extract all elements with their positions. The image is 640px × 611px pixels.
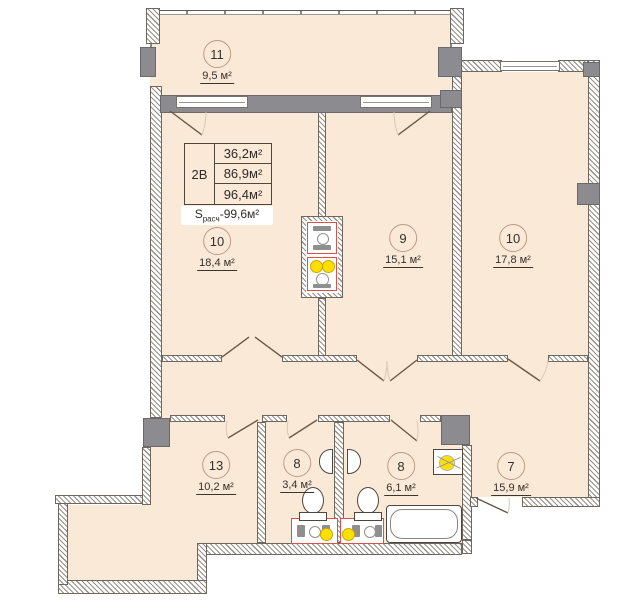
legend-total-prefix: S bbox=[195, 207, 203, 221]
room-number-badge: 11 bbox=[203, 40, 231, 68]
floor-plan: 2В 36,2м² 86,9м² 96,4м² Sрасч-99,6м² 11 … bbox=[0, 0, 640, 611]
toilet-icon bbox=[357, 487, 379, 514]
door-arc bbox=[508, 498, 509, 513]
wall-mid-seg2 bbox=[282, 355, 357, 362]
vent-grille bbox=[313, 226, 331, 231]
vent-grille bbox=[313, 284, 331, 288]
wall-low-seg1 bbox=[170, 415, 225, 422]
column-hall-right bbox=[441, 415, 470, 445]
toilet-tank-icon bbox=[299, 512, 327, 521]
room-label-9: 9 15,1 м² bbox=[383, 224, 423, 268]
wall-mid-seg3 bbox=[417, 355, 508, 362]
window-room-10-left bbox=[176, 96, 248, 108]
legend-area-row: 36,2м² bbox=[215, 144, 271, 164]
wall-left-lower bbox=[142, 447, 151, 505]
wall-outer-left bbox=[150, 86, 162, 418]
room-number-badge: 9 bbox=[389, 224, 417, 252]
column-balcony-right bbox=[438, 47, 462, 77]
column-top-right-corner bbox=[583, 62, 600, 77]
window-room-9 bbox=[360, 96, 432, 108]
legend-total-value: 99,6м² bbox=[224, 207, 260, 221]
wall-low-seg3 bbox=[318, 415, 390, 422]
room-area-label: 15,9 м² bbox=[491, 482, 531, 496]
room-number-badge: 10 bbox=[499, 224, 527, 252]
wall-step-vertical bbox=[197, 543, 207, 585]
wall-bottom-left bbox=[58, 580, 207, 594]
wall-room7-bottom bbox=[522, 497, 600, 507]
wall-mid-seg4 bbox=[548, 355, 588, 362]
balcony-glazing bbox=[150, 10, 452, 15]
column-right-wall bbox=[577, 183, 600, 205]
wall-room7-left bbox=[462, 445, 472, 540]
room-label-10-left: 10 18,4 м² bbox=[197, 227, 237, 271]
room-area-label: 9,5 м² bbox=[200, 70, 234, 84]
electrical-panel-icon bbox=[433, 449, 463, 475]
room-number-badge: 8 bbox=[387, 452, 415, 480]
room-label-10-right: 10 17,8 м² bbox=[493, 224, 533, 268]
wall-low-seg4 bbox=[420, 415, 441, 422]
legend-area-row: 96,4м² bbox=[215, 184, 271, 204]
room-label-13: 13 10,2 м² bbox=[196, 451, 236, 495]
duct-circle bbox=[317, 233, 329, 245]
riser-dot bbox=[342, 528, 355, 541]
wall-room7-left-foot bbox=[462, 540, 472, 554]
legend-total-sub: расч bbox=[203, 214, 220, 223]
column-balcony-left bbox=[140, 47, 156, 77]
wall-column-top-right bbox=[450, 8, 464, 44]
room-area-label: 15,1 м² bbox=[383, 254, 423, 268]
legend-type: 2В bbox=[185, 144, 215, 204]
floor-balcony bbox=[150, 12, 452, 95]
wall-corridor-left bbox=[58, 503, 68, 585]
room-number-badge: 8 bbox=[283, 449, 311, 477]
vent-shaft-lower bbox=[307, 257, 337, 291]
door-swing bbox=[476, 498, 508, 513]
room-area-label: 18,4 м² bbox=[197, 257, 237, 271]
column-room13-topleft bbox=[143, 418, 170, 447]
room-label-balcony: 11 9,5 м² bbox=[200, 40, 234, 84]
bathtub-inner bbox=[390, 509, 458, 539]
riser-dot bbox=[320, 528, 333, 541]
wall-outer-right bbox=[588, 60, 600, 505]
wall-bathrooms-bottom bbox=[205, 543, 462, 555]
vent-shaft-upper bbox=[307, 222, 337, 254]
room-area-label: 3,4 м² bbox=[280, 479, 314, 493]
wall-10l-9-upper bbox=[318, 108, 326, 218]
wall-column-top-left bbox=[146, 8, 160, 44]
floor-room-10-right bbox=[462, 72, 588, 358]
legend-total: Sрасч-99,6м² bbox=[181, 206, 273, 225]
wall-10l-9-lower bbox=[318, 298, 326, 356]
room-area-label: 17,8 м² bbox=[493, 254, 533, 268]
room-number-badge: 10 bbox=[203, 227, 231, 255]
floor-entry-corridor bbox=[68, 505, 205, 580]
wall-9-10r bbox=[452, 72, 462, 356]
wall-13-8a bbox=[257, 422, 266, 543]
wall-mid-seg1 bbox=[162, 355, 222, 362]
legend-area-row: 86,9м² bbox=[215, 164, 271, 184]
vent-grille bbox=[313, 245, 331, 250]
column-10r-topleft bbox=[440, 90, 462, 108]
room-number-badge: 7 bbox=[497, 452, 525, 480]
vent-grille bbox=[297, 525, 305, 537]
room-label-7: 7 15,9 м² bbox=[491, 452, 531, 496]
room-area-label: 6,1 м² bbox=[384, 482, 418, 496]
room-number-badge: 13 bbox=[202, 451, 230, 479]
riser-dot bbox=[322, 260, 335, 273]
legend-table: 2В 36,2м² 86,9м² 96,4м² bbox=[184, 143, 272, 205]
wall-room7-bottom-stub bbox=[470, 497, 478, 507]
wall-low-seg2 bbox=[262, 415, 287, 422]
room-area-label: 10,2 м² bbox=[196, 481, 236, 495]
toilet-tank-icon bbox=[354, 512, 382, 521]
room-label-8-large: 8 6,1 м² bbox=[384, 452, 418, 496]
vent-grille bbox=[375, 525, 382, 537]
window-room-10-right bbox=[500, 61, 560, 71]
wall-corridor-top bbox=[55, 495, 143, 504]
room-label-8-small: 8 3,4 м² bbox=[280, 449, 314, 493]
bathtub-icon bbox=[386, 505, 462, 543]
